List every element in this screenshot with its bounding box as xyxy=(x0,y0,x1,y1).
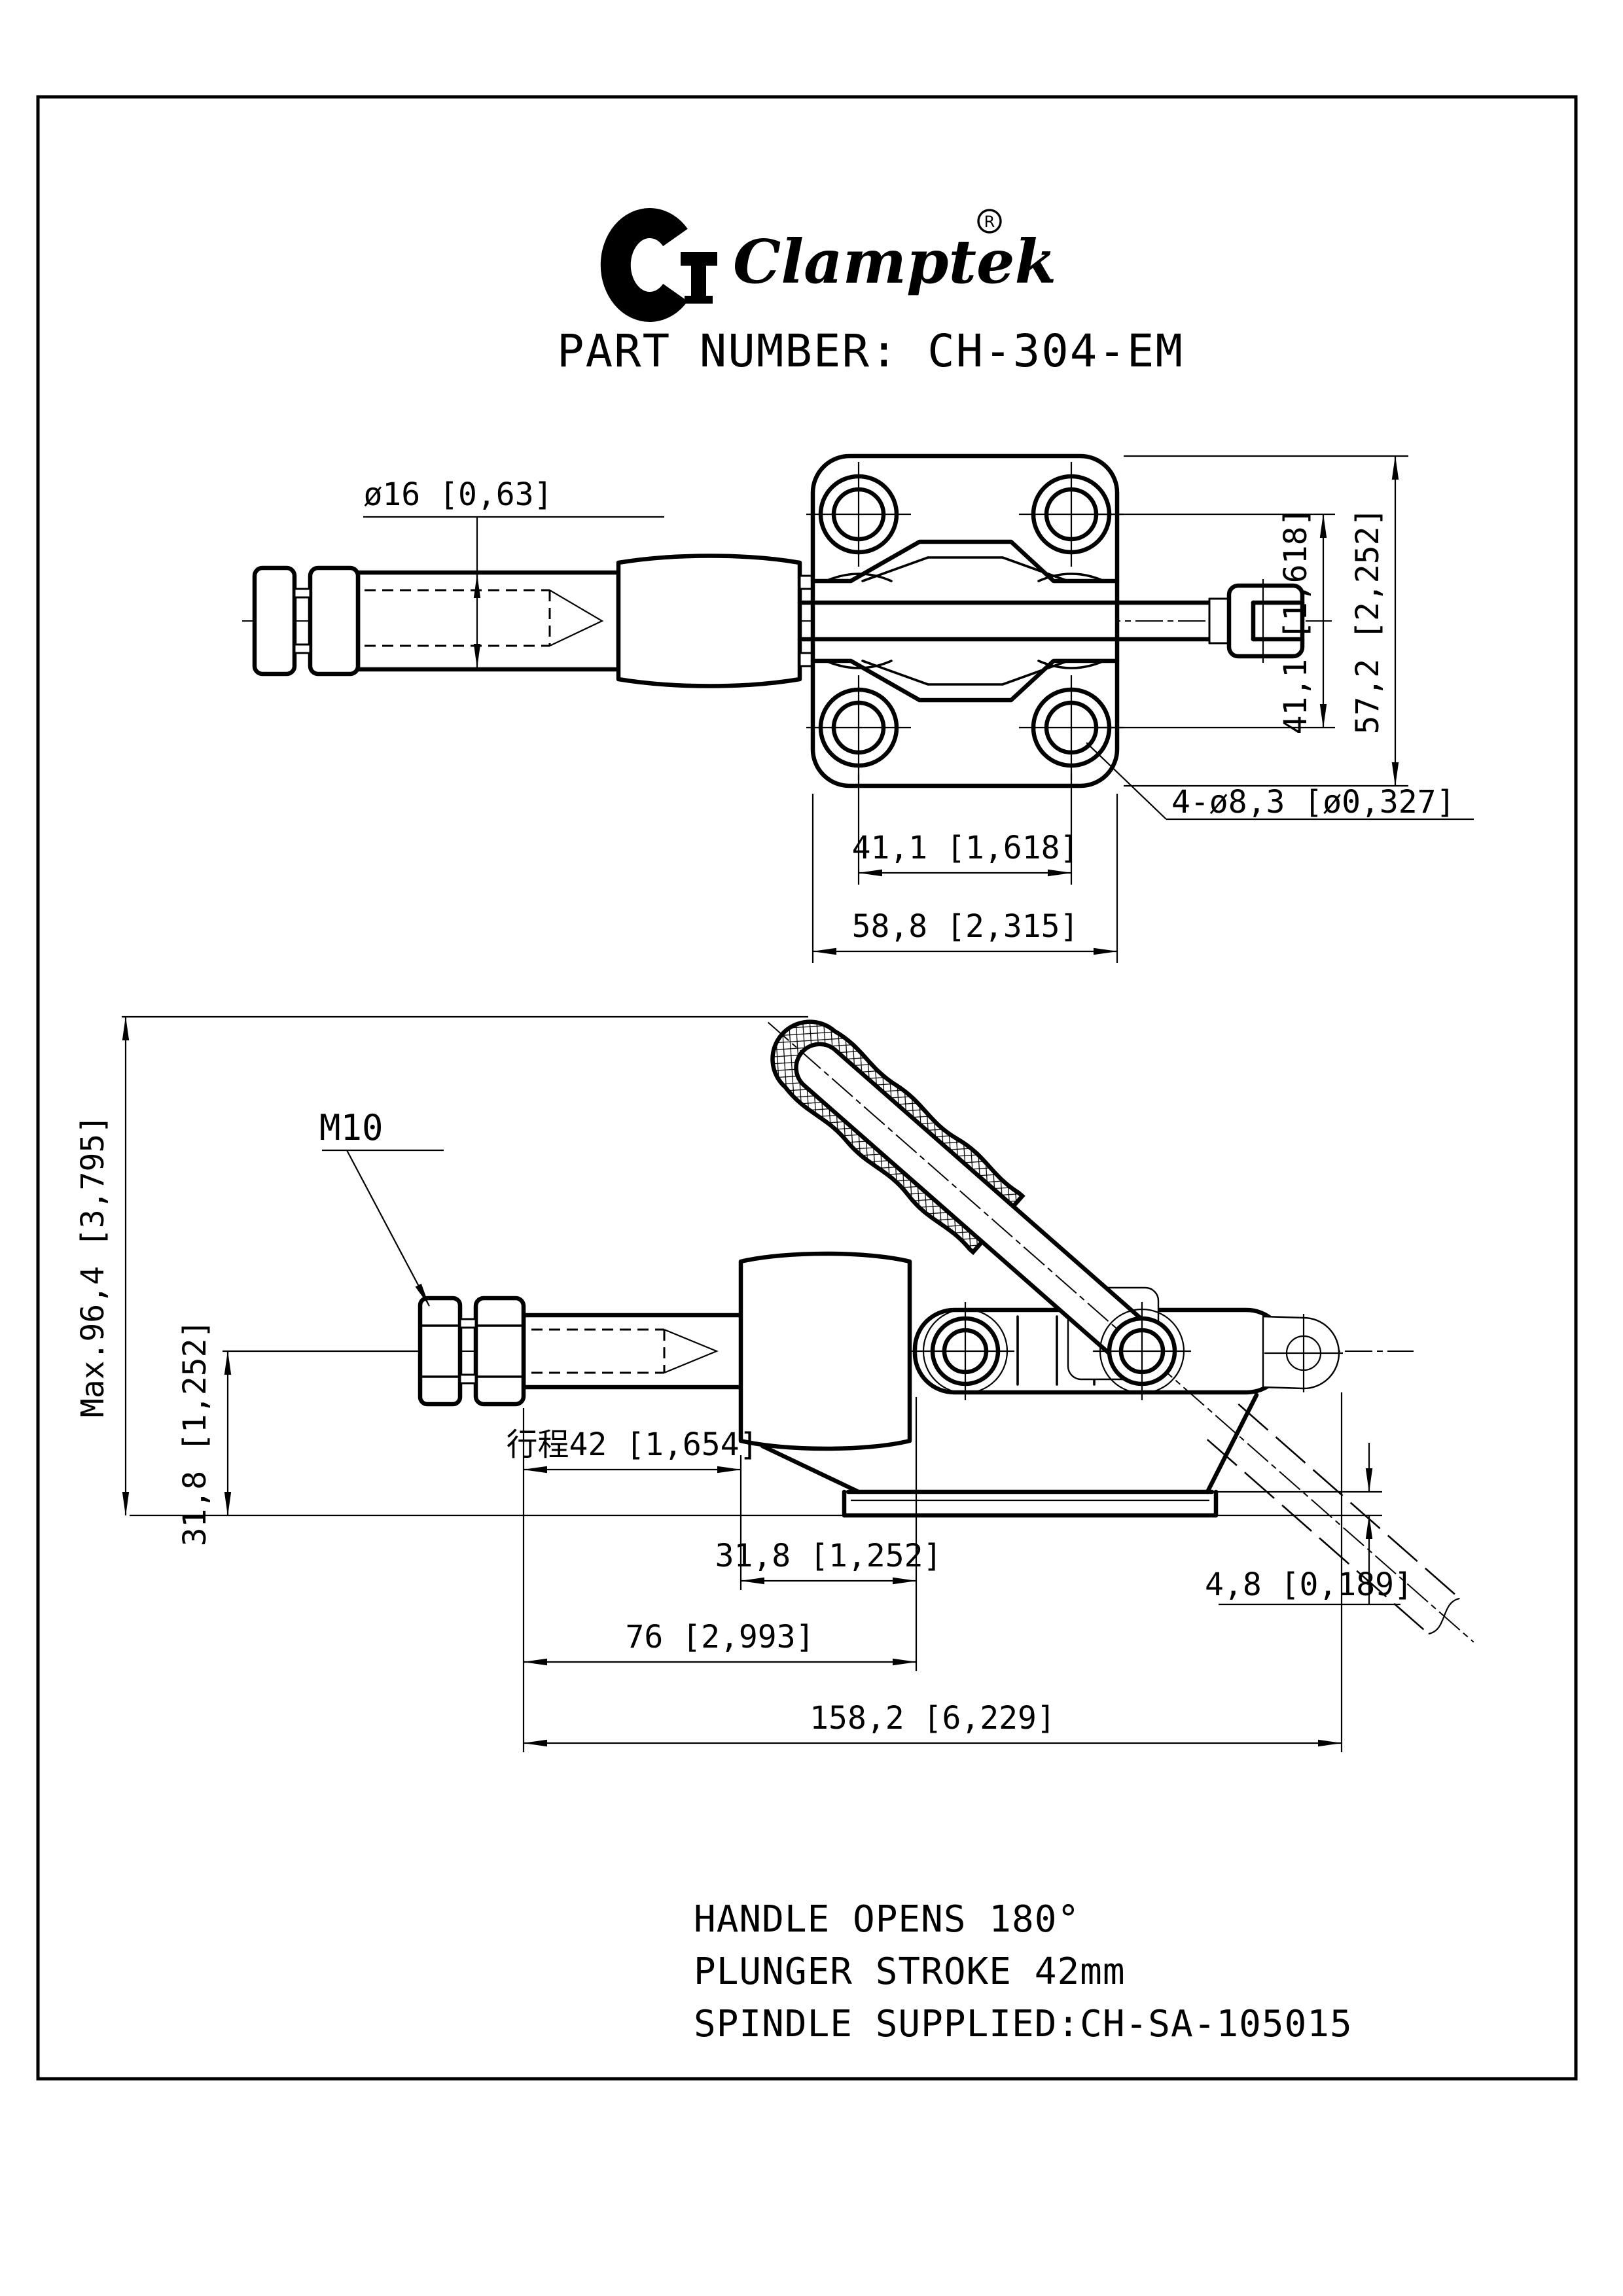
dim-hole-pitch-vertical: 41,1 [1,618] xyxy=(1277,508,1314,735)
dim-mounting-holes: 4-ø8,3 [ø0,327] xyxy=(1171,784,1455,821)
note-plunger-stroke: PLUNGER STROKE 42mm xyxy=(694,1951,1126,1993)
registered-mark: R xyxy=(984,213,995,231)
dim-plate-height: 57,2 [2,252] xyxy=(1349,508,1386,735)
dim-nut-to-body: 76 [2,993] xyxy=(626,1619,815,1655)
plunger-rod-side xyxy=(524,1315,746,1387)
body-barrel-side xyxy=(741,1254,910,1449)
dim-overall-length: 158,2 [6,229] xyxy=(810,1700,1056,1737)
body-barrel-top xyxy=(618,556,800,686)
dim-body-width: 31,8 [1,252] xyxy=(715,1538,942,1574)
dim-spindle-diameter: ø16 [0,63] xyxy=(364,476,553,513)
note-handle-opens: HANDLE OPENS 180° xyxy=(694,1898,1080,1941)
label-thread: M10 xyxy=(319,1107,383,1148)
spindle-top xyxy=(255,568,618,674)
drawing-title: PART NUMBER: CH-304-EM xyxy=(557,325,1184,378)
dim-flange-thickness: 4,8 [0,189] xyxy=(1205,1566,1413,1603)
dim-hole-pitch-horizontal: 41,1 [1,618] xyxy=(852,830,1079,866)
brand-name: Clamptek xyxy=(733,226,1056,297)
dim-plunger-stroke: 行程42 [1,654] xyxy=(507,1426,758,1463)
note-spindle-supplied: SPINDLE SUPPLIED:CH-SA-105015 xyxy=(694,2003,1353,2045)
drawing-sheet: Clamptek R PART NUMBER: CH-304-EM xyxy=(0,0,1623,2296)
dim-plate-width: 58,8 [2,315] xyxy=(852,908,1079,945)
dim-centerline-to-base: 31,8 [1,252] xyxy=(177,1320,213,1547)
dim-max-height: Max.96,4 [3,795] xyxy=(75,1115,111,1417)
